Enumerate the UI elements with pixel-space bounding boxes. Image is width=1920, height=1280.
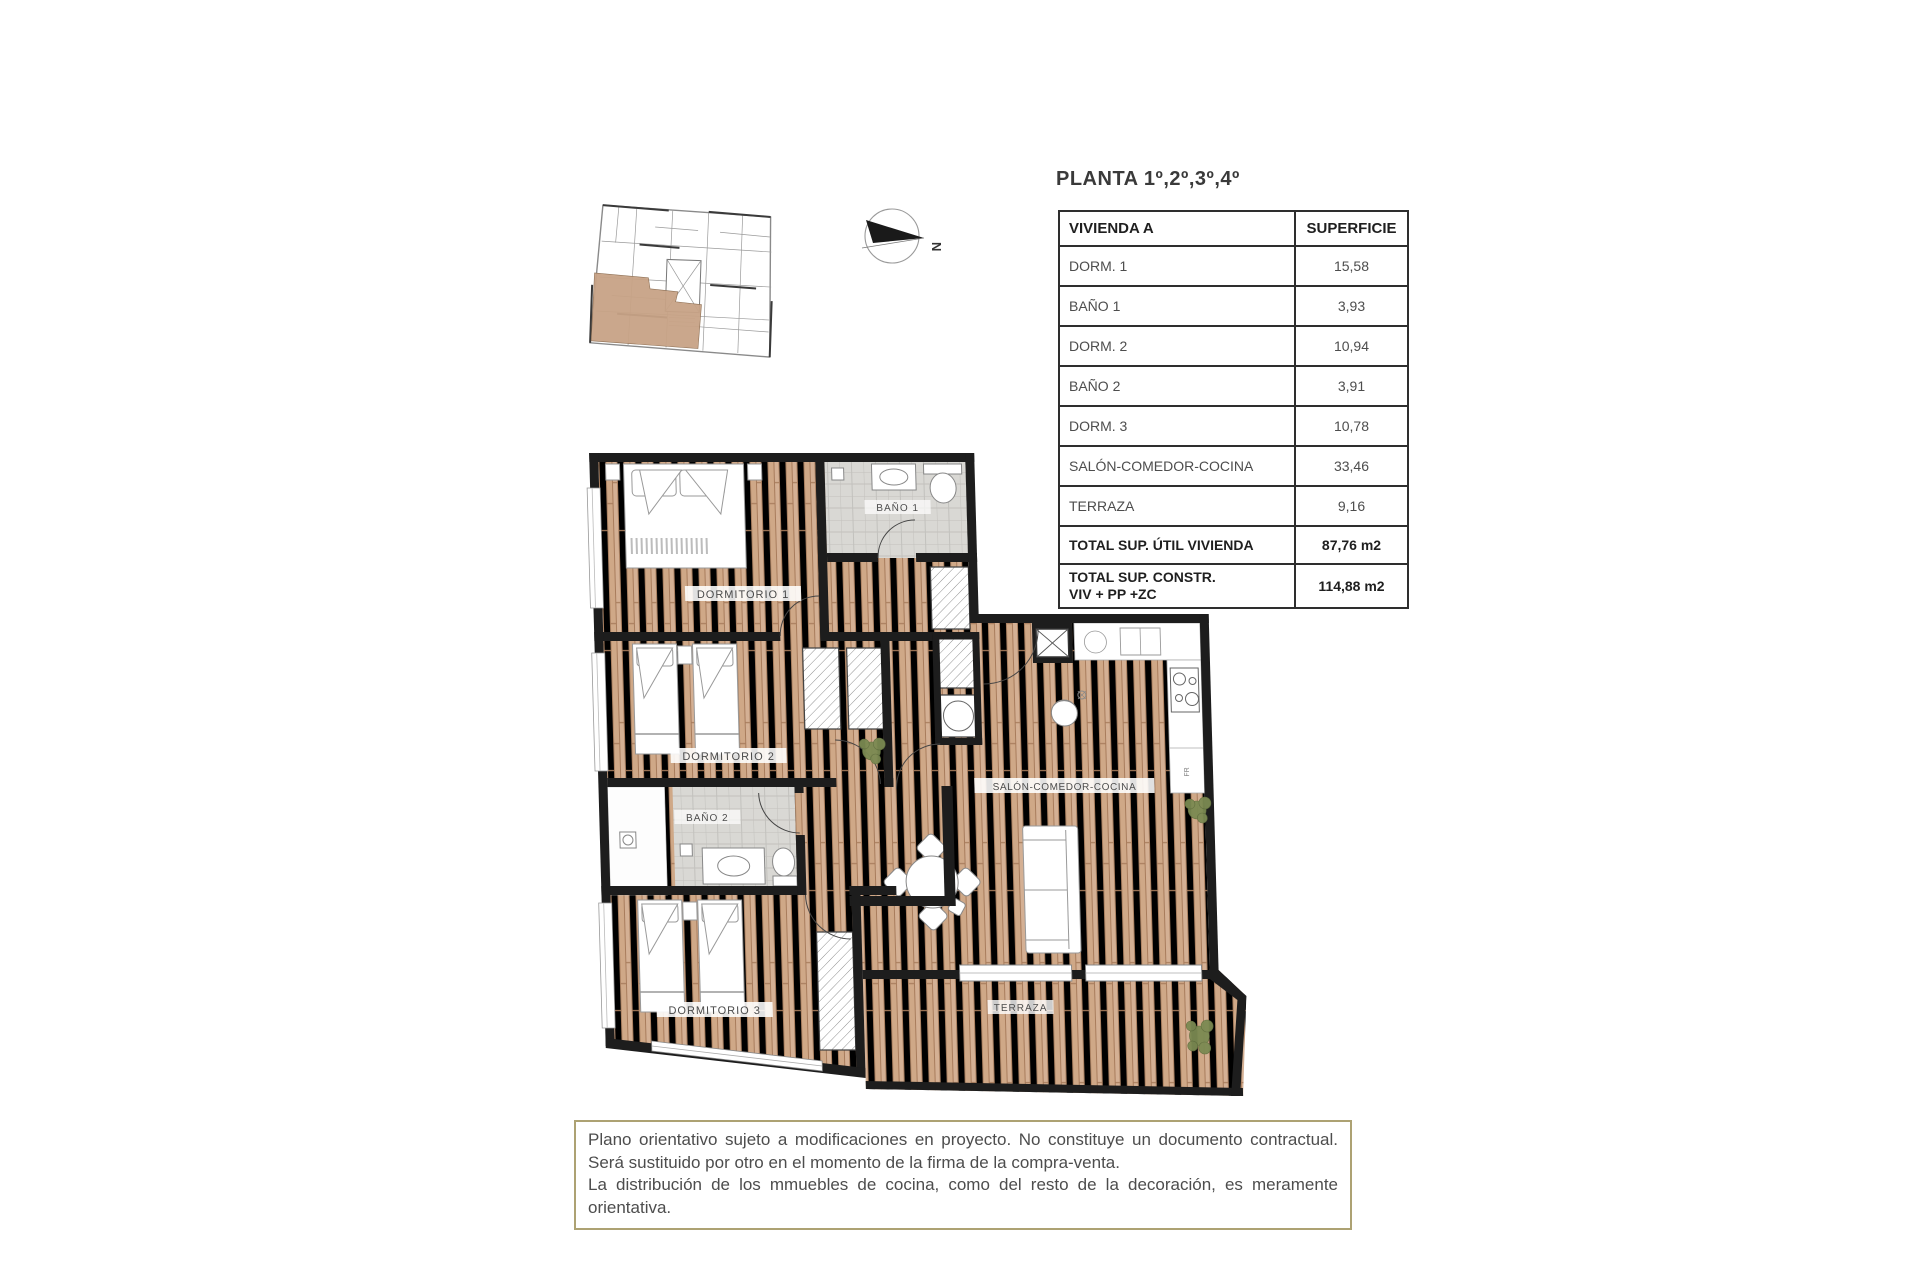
washer-icon [620,832,636,848]
room-area: 3,91 [1295,366,1408,406]
room-label-bano1: BAÑO 1 [876,501,919,514]
key-plan-overview [578,198,788,378]
room-label: DORM. 3 [1059,406,1295,446]
north-label: N [929,242,944,251]
table-row: BAÑO 1 3,93 [1059,286,1408,326]
room-label: BAÑO 1 [1059,286,1295,326]
table-row: DORM. 1 15,58 [1059,246,1408,286]
table-row: DORM. 2 10,94 [1059,326,1408,366]
room-label: BAÑO 2 [1059,366,1295,406]
room-label-terraza: TERRAZA [994,1003,1048,1014]
total-util-value: 87,76 m2 [1295,526,1408,564]
room-label-dormitorio2: DORMITORIO 2 [682,751,775,763]
room-label: DORM. 1 [1059,246,1295,286]
table-row: BAÑO 2 3,91 [1059,366,1408,406]
disclaimer-text-1: Plano orientativo sujeto a modificacione… [588,1129,1338,1174]
laundry-niche-floor [607,787,667,895]
shaft-icon [1036,629,1069,657]
room-area: 9,16 [1295,486,1408,526]
total-constr-value: 114,88 m2 [1295,564,1408,608]
room-area: 15,58 [1295,246,1408,286]
floor-plan-sheet: N PLANTA 1º,2º,3º,4º VIVIENDA A SUPERFIC… [0,0,1920,1280]
table-header-superficie: SUPERFICIE [1295,211,1408,246]
room-area: 10,94 [1295,326,1408,366]
fridge-label: FR [1184,767,1191,776]
room-label-dormitorio3: DORMITORIO 3 [668,1005,761,1017]
room-area: 33,46 [1295,446,1408,486]
disclaimer-text-2: La distribución de los mmuebles de cocin… [588,1174,1338,1219]
table-row: DORM. 3 10,78 [1059,406,1408,446]
room-label-salon: SALÓN-COMEDOR-COCINA [992,780,1136,793]
disclaimer-box: Plano orientativo sujeto a modificacione… [574,1120,1352,1230]
table-header-row: VIVIENDA A SUPERFICIE [1059,211,1408,246]
north-compass: N [848,196,958,291]
page-title: PLANTA 1º,2º,3º,4º [1056,168,1240,191]
room-label-bano2: BAÑO 2 [686,811,729,824]
table-header-vivienda: VIVIENDA A [1059,211,1295,246]
room-label: DORM. 2 [1059,326,1295,366]
room-area: 10,78 [1295,406,1408,446]
apartment-floor-plan: FR [575,448,1265,1108]
bed-double-dorm1 [605,464,764,568]
sofa [1023,826,1082,953]
room-area: 3,93 [1295,286,1408,326]
room-label-dormitorio1: DORMITORIO 1 [697,589,790,601]
